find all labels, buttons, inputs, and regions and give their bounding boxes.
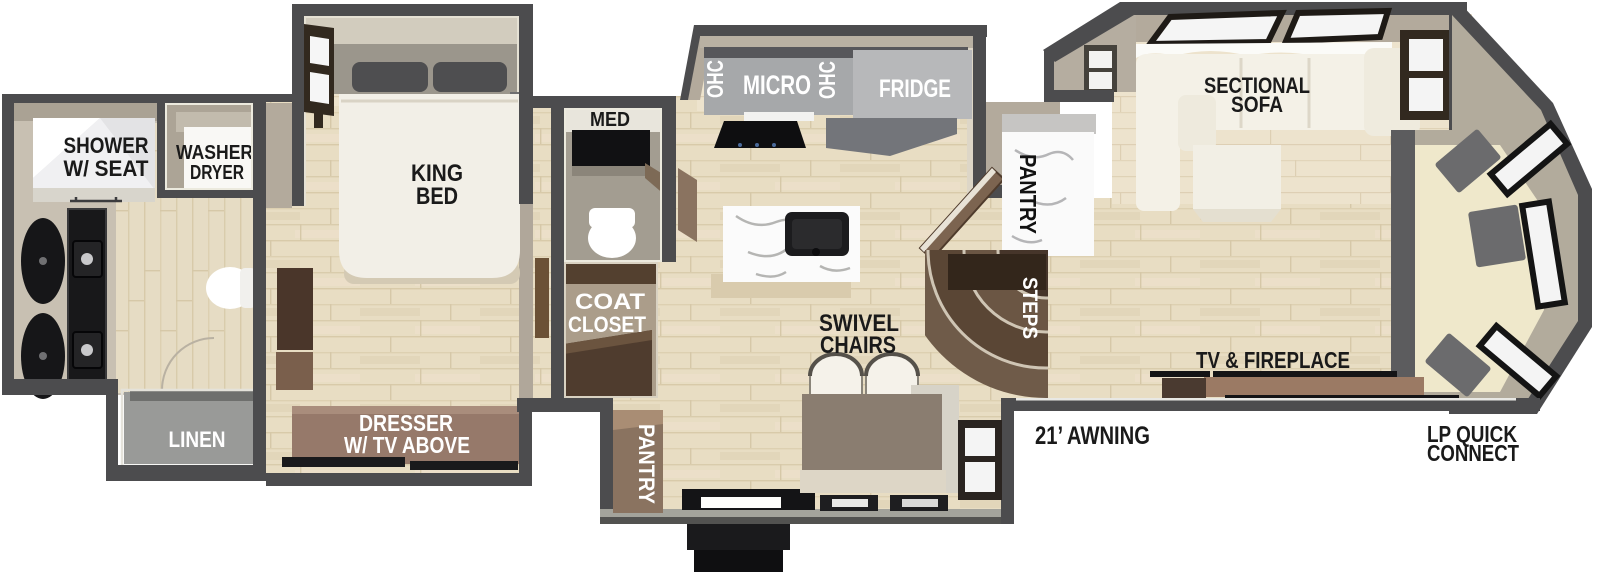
svg-text:SHOWER: SHOWER — [64, 133, 149, 158]
svg-text:SOFA: SOFA — [1231, 92, 1283, 117]
svg-text:DRYER: DRYER — [190, 162, 244, 184]
svg-text:TV & FIREPLACE: TV & FIREPLACE — [1196, 347, 1350, 373]
svg-text:WASHER/: WASHER/ — [176, 142, 258, 164]
svg-text:STEPS: STEPS — [1018, 277, 1041, 339]
svg-text:CLOSET: CLOSET — [568, 312, 646, 337]
svg-text:COAT: COAT — [575, 289, 646, 314]
svg-text:LINEN: LINEN — [169, 427, 226, 452]
svg-text:21’ AWNING: 21’ AWNING — [1035, 422, 1150, 450]
svg-text:OHC: OHC — [702, 60, 728, 98]
svg-text:FRIDGE: FRIDGE — [879, 75, 951, 103]
svg-text:OHC: OHC — [814, 61, 840, 99]
svg-text:CHAIRS: CHAIRS — [820, 332, 896, 359]
svg-text:BED: BED — [416, 183, 458, 210]
svg-text:MICRO: MICRO — [743, 70, 811, 100]
svg-text:W/ SEAT: W/ SEAT — [64, 156, 150, 181]
svg-text:PANTRY: PANTRY — [1015, 154, 1041, 234]
svg-text:W/ TV ABOVE: W/ TV ABOVE — [344, 432, 470, 458]
svg-text:CONNECT: CONNECT — [1427, 440, 1519, 466]
svg-text:PANTRY: PANTRY — [634, 424, 659, 504]
svg-text:MED: MED — [590, 109, 630, 131]
